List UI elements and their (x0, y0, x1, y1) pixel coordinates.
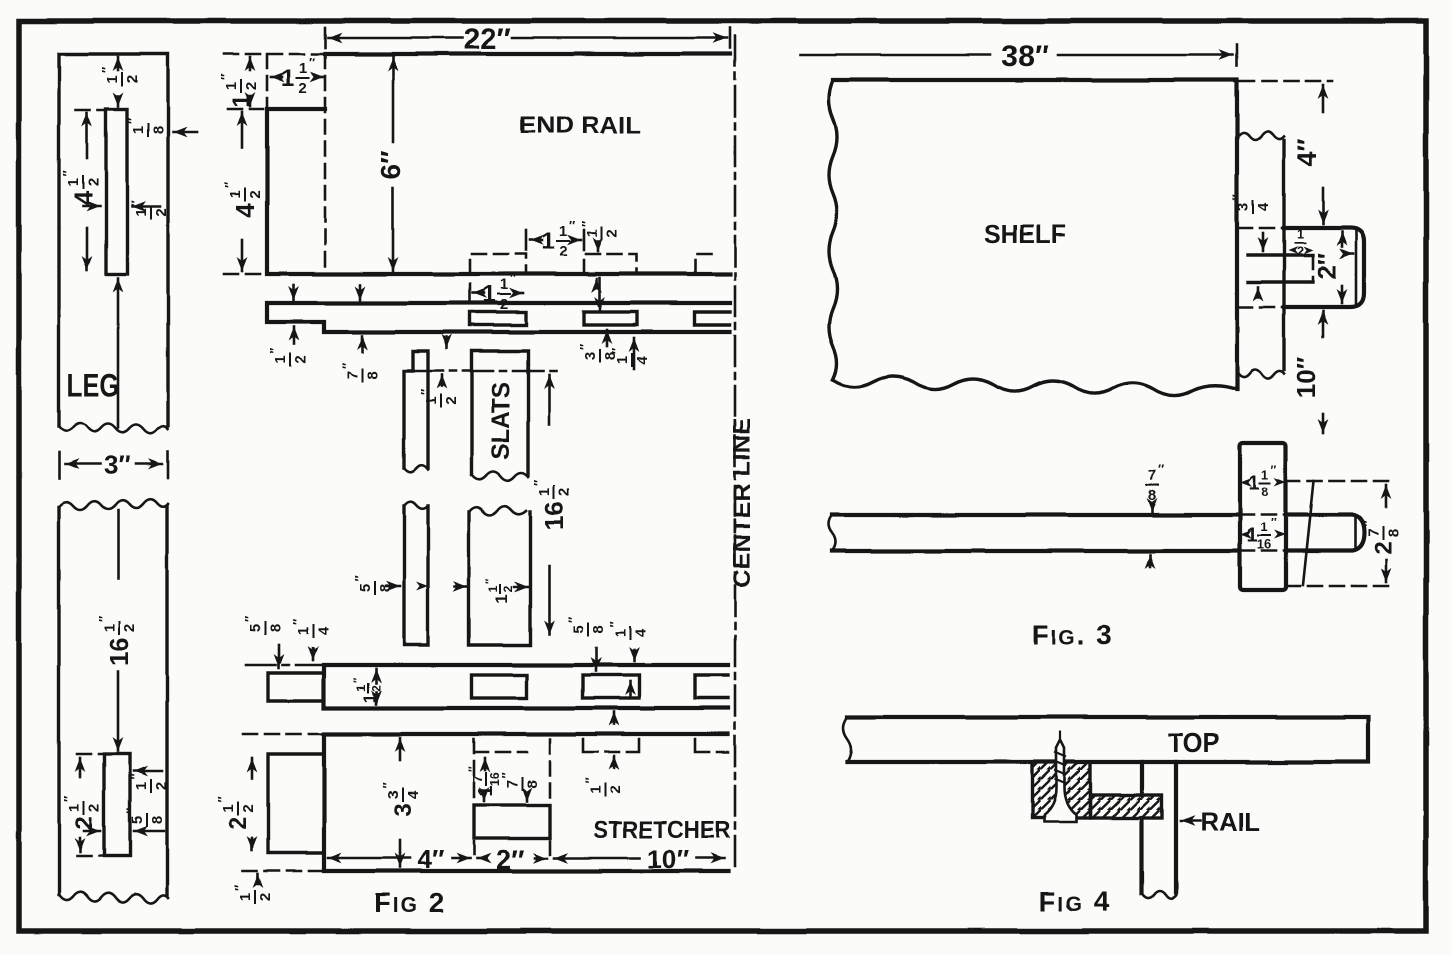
svg-text:SHELF: SHELF (984, 219, 1066, 249)
svg-text:4″: 4″ (418, 844, 445, 874)
svg-text:CENTER LINE: CENTER LINE (729, 418, 756, 588)
svg-text:10″: 10″ (647, 844, 688, 874)
svg-text:6″: 6″ (375, 151, 406, 180)
svg-text:10″: 10″ (1291, 357, 1321, 398)
svg-text:TOP: TOP (1168, 727, 1220, 758)
svg-text:STRETCHER: STRETCHER (594, 817, 731, 844)
svg-text:4″: 4″ (1292, 138, 1322, 166)
svg-text:3″: 3″ (104, 450, 131, 480)
svg-text:38″: 38″ (1001, 40, 1049, 73)
svg-text:LEG: LEG (67, 367, 119, 403)
svg-text:2″: 2″ (1312, 253, 1342, 280)
svg-text:22″: 22″ (463, 23, 511, 56)
svg-text:SLATS: SLATS (487, 382, 515, 460)
svg-text:RAIL: RAIL (1200, 807, 1260, 837)
svg-text:2″: 2″ (496, 844, 525, 875)
svg-text:END RAIL: END RAIL (519, 112, 641, 139)
